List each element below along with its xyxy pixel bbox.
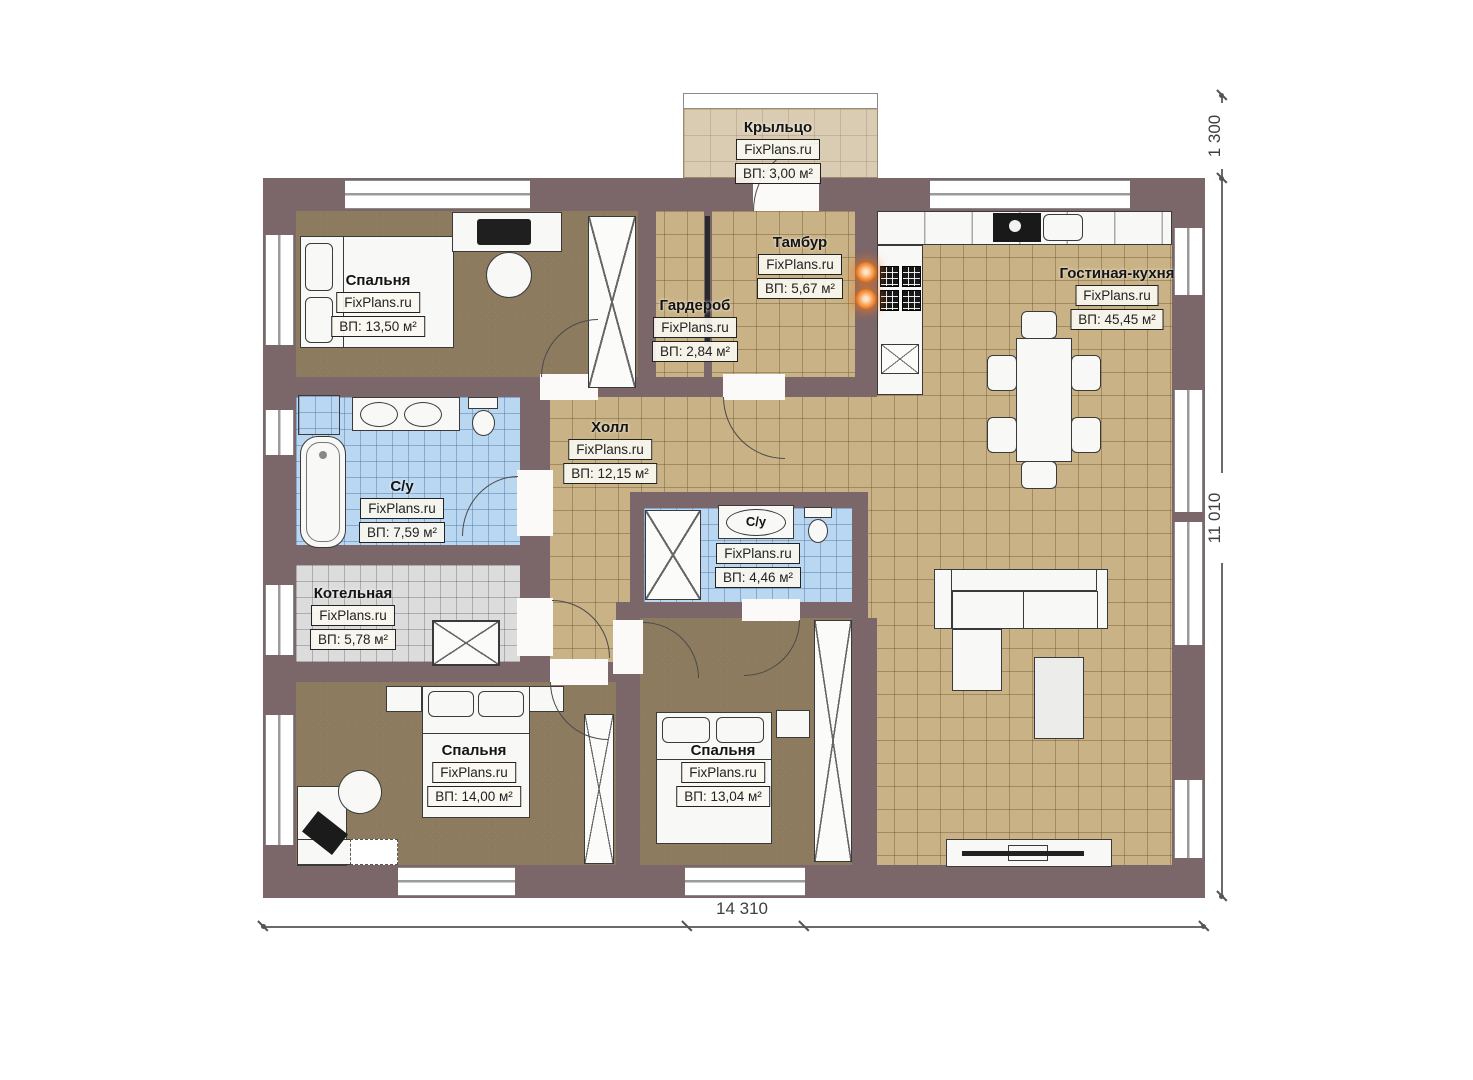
- wall-living-left: [852, 618, 877, 865]
- room-label-boiler: Котельная FixPlans.ru ВП: 5,78 м²: [310, 585, 396, 650]
- dimension-total-width: 14 310: [690, 899, 794, 919]
- window: [345, 180, 530, 209]
- shower-tray: [645, 510, 701, 600]
- dimension-porch-depth: 1 300: [1205, 103, 1225, 169]
- brand-watermark: FixPlans.ru: [336, 292, 420, 313]
- room-area: ВП: 5,67 м²: [757, 278, 843, 299]
- sink: [404, 402, 442, 427]
- window: [265, 410, 294, 455]
- brand-watermark: FixPlans.ru: [653, 317, 737, 338]
- room-name: Спальня: [427, 742, 521, 759]
- room-name: С/у: [359, 478, 445, 495]
- window: [1174, 390, 1203, 512]
- room-name: Спальня: [676, 742, 770, 759]
- pillow: [428, 691, 474, 717]
- burner-icon: [902, 290, 921, 311]
- nightstand: [386, 686, 422, 712]
- power-outlet-marker: [856, 262, 876, 282]
- door-opening: [517, 598, 553, 656]
- burner-icon: [902, 266, 921, 287]
- room-label-bathroom-main: С/у FixPlans.ru ВП: 7,59 м²: [359, 478, 445, 543]
- room-label-hall: Холл FixPlans.ru ВП: 12,15 м²: [563, 419, 657, 484]
- brand-watermark: FixPlans.ru: [681, 762, 765, 783]
- toilet-tank: [468, 397, 498, 409]
- wardrobe-closet: [814, 620, 852, 862]
- room-label-bedroom-top: Спальня FixPlans.ru ВП: 13,50 м²: [331, 272, 425, 337]
- room-area: ВП: 12,15 м²: [563, 463, 657, 484]
- toilet-bowl: [472, 410, 495, 436]
- sink: С/у: [726, 509, 786, 536]
- sofa-armrest: [934, 569, 952, 629]
- pillow: [305, 297, 333, 343]
- wall-bath-boiler: [296, 545, 550, 565]
- pillow: [662, 717, 710, 743]
- room-area: ВП: 5,78 м²: [310, 629, 396, 650]
- sofa-seam: [1023, 592, 1024, 628]
- coffee-table: [1034, 657, 1084, 739]
- office-chair: [486, 252, 532, 298]
- dimension-dot: [1219, 176, 1224, 181]
- chair: [1071, 417, 1101, 453]
- window: [265, 585, 294, 655]
- storage-outline: [350, 839, 398, 865]
- faucet-icon: [1009, 220, 1021, 232]
- kitchen-sink: [993, 213, 1041, 242]
- tv-screen: [962, 851, 1084, 856]
- brand-watermark: FixPlans.ru: [432, 762, 516, 783]
- chair: [1021, 461, 1057, 489]
- toilet-tank: [804, 507, 832, 518]
- sink: [360, 402, 398, 427]
- room-area: ВП: 4,46 м²: [715, 567, 801, 588]
- blanket-line: [423, 733, 529, 734]
- burner-icon: [880, 290, 899, 311]
- brand-watermark: FixPlans.ru: [736, 139, 820, 160]
- room-name: Холл: [563, 419, 657, 436]
- chair: [987, 355, 1017, 391]
- dimension-dot: [1219, 93, 1224, 98]
- burner-icon: [880, 266, 899, 287]
- room-label-porch: Крыльцо FixPlans.ru ВП: 3,00 м²: [735, 119, 821, 184]
- room-name: Гостиная-кухня: [1060, 265, 1175, 282]
- toilet-bowl: [808, 519, 828, 543]
- window: [1174, 228, 1203, 295]
- window: [265, 715, 294, 845]
- printer: [477, 219, 531, 245]
- room-area: ВП: 45,45 м²: [1070, 309, 1164, 330]
- dimension-dot: [1201, 924, 1206, 929]
- room-label-living-kitchen: Гостиная-кухня FixPlans.ru ВП: 45,45 м²: [1060, 265, 1175, 330]
- room-name: Котельная: [310, 585, 396, 602]
- room-area: ВП: 13,04 м²: [676, 786, 770, 807]
- window: [930, 180, 1130, 209]
- room-label-bedroom-left: Спальня FixPlans.ru ВП: 14,00 м²: [427, 742, 521, 807]
- room-label-bathroom-small: FixPlans.ru ВП: 4,46 м²: [715, 540, 801, 588]
- drain-icon: [319, 451, 327, 459]
- sofa-seats: [952, 591, 1098, 629]
- shower-niche: [298, 395, 340, 435]
- sofa-back: [936, 569, 1108, 591]
- room-name: Гардероб: [652, 297, 738, 314]
- room-name: Тамбур: [757, 234, 843, 251]
- sofa-chaise: [952, 629, 1002, 691]
- wall-bathroom-small-left: [630, 492, 644, 618]
- room-label-wardrobe: Гардероб FixPlans.ru ВП: 2,84 м²: [652, 297, 738, 362]
- room-name: Спальня: [331, 272, 425, 289]
- kitchen-sink-basin: [1043, 214, 1083, 241]
- room-area: ВП: 2,84 м²: [652, 341, 738, 362]
- window: [685, 867, 805, 896]
- brand-watermark: FixPlans.ru: [311, 605, 395, 626]
- nightstand: [776, 710, 810, 738]
- chair: [987, 417, 1017, 453]
- pillow: [478, 691, 524, 717]
- room-area: ВП: 3,00 м²: [735, 163, 821, 184]
- room-area: ВП: 13,50 м²: [331, 316, 425, 337]
- window: [265, 235, 294, 345]
- door-opening: [613, 620, 643, 674]
- window: [1174, 522, 1203, 645]
- window: [1174, 780, 1203, 858]
- power-outlet-marker: [856, 289, 876, 309]
- room-label-bedroom-mid: Спальня FixPlans.ru ВП: 13,04 м²: [676, 742, 770, 807]
- door-opening: [517, 470, 553, 536]
- window: [398, 867, 515, 896]
- bathtub: [300, 436, 346, 548]
- room-area: ВП: 14,00 м²: [427, 786, 521, 807]
- pillow: [716, 717, 764, 743]
- room-name: Крыльцо: [735, 119, 821, 136]
- dining-table: [1016, 338, 1072, 462]
- brand-watermark: FixPlans.ru: [1075, 285, 1159, 306]
- pillow: [305, 243, 333, 291]
- stove-burners: [880, 266, 924, 311]
- dimension-dot: [261, 924, 266, 929]
- brand-watermark: FixPlans.ru: [758, 254, 842, 275]
- dimension-total-height: 11 010: [1205, 473, 1225, 563]
- brand-watermark: FixPlans.ru: [568, 439, 652, 460]
- chair: [1021, 311, 1057, 339]
- door-opening: [742, 599, 800, 621]
- floor-plan-canvas: С/у Крыльцо FixPlans.ru ВП: 3,00 м² Спал…: [0, 0, 1473, 1080]
- appliance-box: [881, 344, 919, 374]
- dimension-line-bottom: [263, 926, 1205, 928]
- brand-watermark: FixPlans.ru: [716, 543, 800, 564]
- brand-watermark: FixPlans.ru: [360, 498, 444, 519]
- room-label-tambour: Тамбур FixPlans.ru ВП: 5,67 м²: [757, 234, 843, 299]
- dimension-dot: [1219, 894, 1224, 899]
- chair: [1071, 355, 1101, 391]
- boiler-unit: [432, 620, 500, 666]
- wall-bathroom-small-right: [852, 492, 868, 618]
- room-area: ВП: 7,59 м²: [359, 522, 445, 543]
